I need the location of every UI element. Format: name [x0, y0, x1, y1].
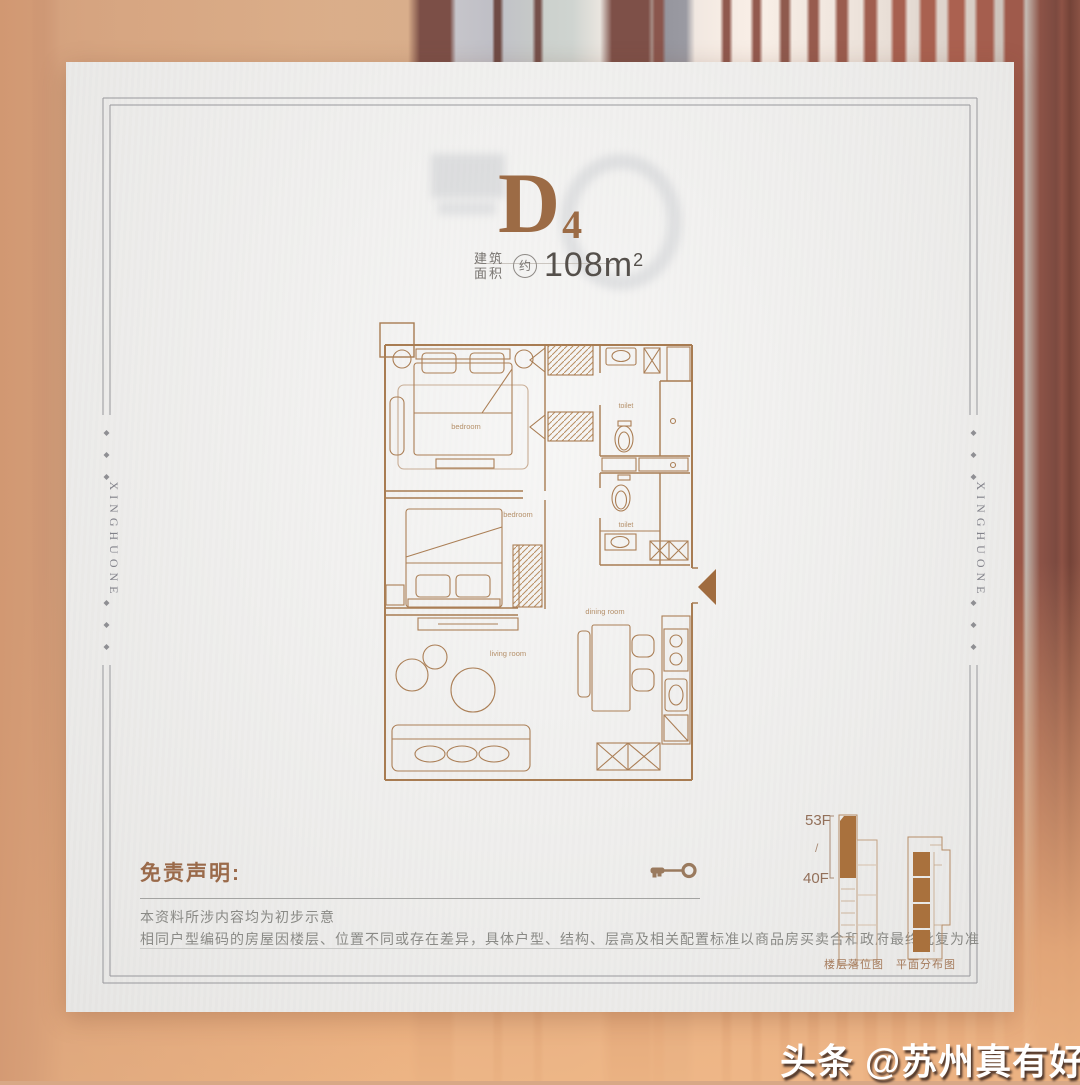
- label-toilet2: toilet: [619, 522, 634, 529]
- area-value: 108m2: [544, 246, 644, 285]
- disclaimer-line1: 本资料所涉内容均为初步示意: [140, 907, 335, 927]
- disclaimer-rule: [140, 898, 700, 899]
- entrance-arrow: [698, 569, 716, 605]
- paper-card: XINGHUONE XINGHUONE D4 建筑 面积 约 108m2: [66, 62, 1014, 1012]
- label-toilet1: toilet: [619, 403, 634, 410]
- label-living: living room: [490, 649, 526, 658]
- ghost-logo-bar: [438, 202, 496, 215]
- bedroom2-furniture: [386, 509, 542, 608]
- living-room-furniture: [392, 618, 530, 771]
- hall-closets: [530, 345, 593, 441]
- unit-letter: D: [498, 155, 560, 251]
- area-row: 建筑 面积 约 108m2: [474, 246, 714, 285]
- label-dining: dining room: [585, 607, 624, 616]
- tower-elevation: [839, 815, 877, 965]
- floor-plan: bedroom toilet: [378, 313, 718, 788]
- side-text-left: XINGHUONE: [107, 482, 121, 599]
- side-text-right: XINGHUONE: [974, 482, 988, 599]
- tower-caption: 楼层落位图: [824, 957, 884, 971]
- master-bedroom-furniture: [390, 349, 533, 469]
- channel-watermark: 头条 @苏州真有好房: [780, 1033, 1080, 1085]
- disclaimer-heading: 免责声明:: [140, 857, 241, 887]
- disclaimer-rule-bottom: [140, 948, 740, 949]
- kitchen-fixtures: [597, 616, 690, 770]
- dining-furniture: [578, 625, 654, 711]
- floor-range-top: 53F: [805, 812, 831, 829]
- area-superscript: 2: [633, 250, 644, 270]
- label-bedroom1: bedroom: [451, 422, 481, 431]
- area-label: 建筑 面积: [474, 251, 504, 281]
- ghost-logo-block: [431, 154, 505, 198]
- mini-diagrams: 53F / 40F 楼层落位图 平面分布图: [795, 805, 965, 975]
- unit-title: D4: [498, 160, 582, 248]
- toilet2-fixtures: [600, 475, 688, 560]
- floor-range-sep: /: [815, 841, 819, 855]
- label-bedroom2: bedroom: [503, 510, 533, 519]
- floor-plate: [908, 837, 950, 959]
- approx-badge: 约: [513, 254, 537, 278]
- key-icon: [650, 861, 700, 881]
- plate-caption: 平面分布图: [896, 958, 956, 971]
- unit-number: 4: [562, 202, 582, 247]
- floor-range-bottom: 40F: [803, 870, 829, 887]
